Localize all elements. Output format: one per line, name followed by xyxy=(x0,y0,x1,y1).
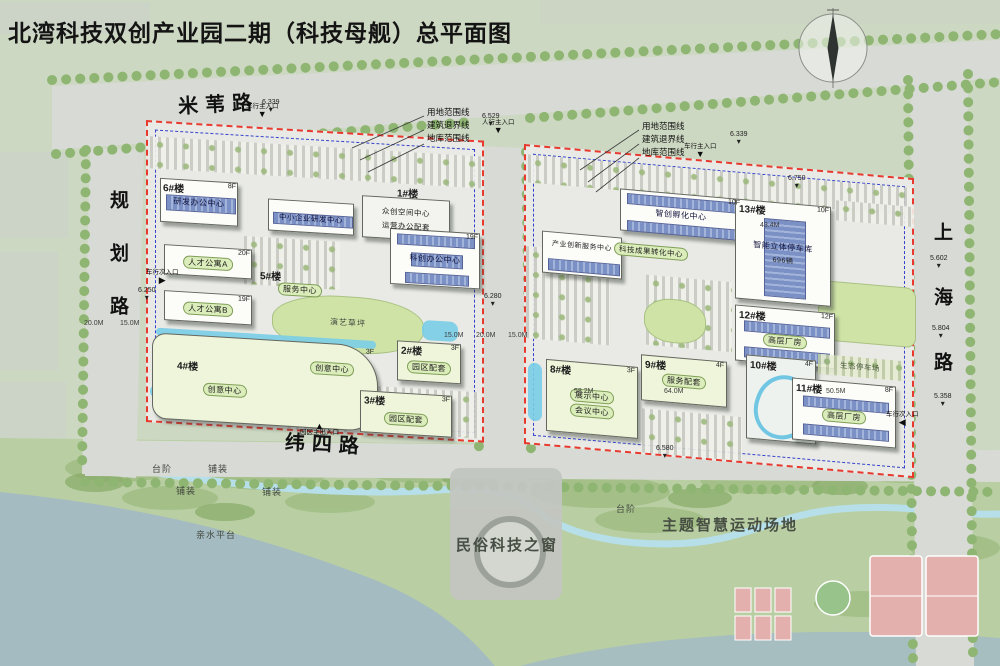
building-floors: 4F xyxy=(716,362,724,370)
dimension-label: 15.0M xyxy=(120,320,139,327)
building-id: 9#楼 xyxy=(645,356,666,373)
building-name: 产业创新服务中心 xyxy=(552,238,612,253)
entrance-marker: 车行次入口◀ xyxy=(886,412,919,426)
building-floors: 4F xyxy=(805,361,813,369)
building-id: 10#楼 xyxy=(750,356,777,373)
building-name: 园区配套 xyxy=(407,360,451,376)
paving-label: 铺装 xyxy=(176,484,196,497)
entrance-marker: ▲园区主出入口 xyxy=(300,422,339,436)
solar-roof xyxy=(397,233,475,249)
legend-east: 用地范围线 建筑退界线 地库范围线 xyxy=(642,120,685,159)
dimension-label: 20.0M xyxy=(476,332,495,339)
building-name: 人才公寓A xyxy=(183,255,233,271)
dimension-label: 20.0M xyxy=(84,320,103,327)
building-id: 1#楼 xyxy=(397,184,418,200)
entrance-marker: 人行主入口▼ xyxy=(482,120,515,134)
elevation-marker: 6.280▾ xyxy=(484,294,502,307)
building-13: 13#楼 10F 智能立体停车库 696辆 xyxy=(735,198,831,306)
building-name: 创意中心 xyxy=(310,361,354,377)
parcel-east: 产业创新服务中心 10F 智创孵化中心 科技成果转化中心 13#楼 10F 智能… xyxy=(524,144,914,478)
building-floors: 8F xyxy=(885,387,893,395)
building-floors: 3F xyxy=(451,345,459,352)
steps-label: 台阶 xyxy=(616,502,636,515)
building-floors: 10F xyxy=(817,207,829,215)
legend-site-line: 用地范围线 xyxy=(642,120,685,133)
building-4: 4#楼 3F 创意中心 创意中心 xyxy=(152,332,378,432)
elevation-marker: 5.358▾ xyxy=(934,394,952,407)
page-title: 北湾科技双创产业园二期（科技母舰）总平面图 xyxy=(8,14,512,48)
building-floors: 19F xyxy=(466,234,478,242)
elevation-marker: 6.750▾ xyxy=(788,176,806,189)
entrance-marker: 车行主入口▼ xyxy=(246,104,279,118)
building-floors: 12F xyxy=(821,313,833,321)
building-name: 科技成果转化中心 xyxy=(614,242,688,261)
site-plan: 演艺草坪 6#楼 8F 研发办公中心 中小企业研发中心 1#楼 众创空间中心 运… xyxy=(0,0,1000,666)
building-aptB: 19F 人才公寓B xyxy=(164,290,252,325)
building-sme: 中小企业研发中心 xyxy=(268,198,354,235)
building-id: 5#楼 xyxy=(260,267,281,283)
parking-strip xyxy=(244,236,340,290)
legend-setback-line: 建筑退界线 xyxy=(642,133,685,146)
legend-basement-line: 地库范围线 xyxy=(427,132,470,145)
dimension-label: 15.0M xyxy=(444,332,463,339)
building-svc: 产业创新服务中心 xyxy=(542,231,622,280)
lawn-label: 演艺草坪 xyxy=(330,316,366,329)
building-floors: 3F xyxy=(366,348,374,355)
steps-label: 台阶 xyxy=(152,462,172,475)
sports-field-label: 主题智慧运动场地 xyxy=(662,514,798,535)
building-name: 高层厂房 xyxy=(763,333,807,350)
building-name: 服务中心 xyxy=(278,282,322,298)
legend-basement-line: 地库范围线 xyxy=(642,146,685,159)
building-id: 11#楼 xyxy=(796,379,822,396)
building-id: 3#楼 xyxy=(364,391,385,407)
elevation-marker: 5.804▾ xyxy=(932,326,950,339)
legend-site-line: 用地范围线 xyxy=(427,106,470,119)
solar-roof xyxy=(405,272,469,287)
legend-setback-line: 建筑退界线 xyxy=(427,119,470,132)
elevation-marker: 6.580▾ xyxy=(656,446,674,459)
paving-label: 铺装 xyxy=(208,462,228,475)
building-kc: 19F 科创办公中心 xyxy=(390,228,480,290)
dimension-label: 15.0M xyxy=(508,332,527,339)
building-capacity: 696辆 xyxy=(773,255,794,267)
entrance-marker: 车行主入口▼ xyxy=(684,144,717,158)
elevation-marker: 6.339▾ xyxy=(730,132,748,145)
building-name: 创意中心 xyxy=(203,382,247,398)
building-name: 人才公寓B xyxy=(183,301,233,317)
legend-west: 用地范围线 建筑退界线 地库范围线 xyxy=(427,106,470,145)
building-id: 6#楼 xyxy=(163,179,184,195)
building-id: 4#楼 xyxy=(177,357,198,373)
building-floors: 3F xyxy=(627,367,635,375)
elevation-marker: 6.250▾ xyxy=(138,288,156,301)
building-6: 6#楼 8F 研发办公中心 xyxy=(160,178,238,227)
solar-roof xyxy=(803,423,889,442)
building-name: 众创空间中心 xyxy=(382,205,430,219)
building-id: 13#楼 xyxy=(739,200,766,217)
building-floors: 20F xyxy=(238,250,250,258)
building-floors: 3F xyxy=(442,396,450,403)
dimension-label: 50.5M xyxy=(826,388,845,395)
road-name-right: 上海路 xyxy=(928,222,955,417)
dimension-label: 58.2M xyxy=(574,388,593,395)
entrance-marker: 车行次入口▶ xyxy=(146,270,179,284)
solar-roof xyxy=(627,220,739,241)
building-2: 2#楼 3F 园区配套 xyxy=(397,340,461,384)
building-floors: 8F xyxy=(228,183,236,190)
dimension-label: 64.0M xyxy=(664,388,683,395)
eco-parking-label: 生态停车场 xyxy=(840,360,880,374)
folk-window-label: 民俗科技之窗 xyxy=(456,534,558,555)
building-id: 12#楼 xyxy=(739,306,766,323)
eco-parking: 生态停车场 xyxy=(818,354,902,381)
building-name: 高层厂房 xyxy=(822,408,866,425)
building-id: 8#楼 xyxy=(550,360,571,377)
building-8: 8#楼 3F 展示中心 会议中心 xyxy=(546,359,638,439)
parcel-west: 演艺草坪 6#楼 8F 研发办公中心 中小企业研发中心 1#楼 众创空间中心 运… xyxy=(146,120,484,443)
building-name: 园区配套 xyxy=(384,412,428,428)
solar-roof xyxy=(548,258,620,276)
dimension-label: 43.4M xyxy=(760,222,779,229)
waterfront-label: 亲水平台 xyxy=(196,528,236,541)
pool xyxy=(528,362,542,421)
elevation-marker: 5.602▾ xyxy=(930,256,948,269)
building-name: 会议中心 xyxy=(570,403,614,420)
building-3: 3#楼 3F 园区配套 xyxy=(360,390,452,438)
building-9: 9#楼 4F 服务配套 xyxy=(641,354,727,408)
building-id: 2#楼 xyxy=(401,342,422,358)
paving-label: 铺装 xyxy=(262,485,282,498)
building-floors: 19F xyxy=(238,296,250,304)
